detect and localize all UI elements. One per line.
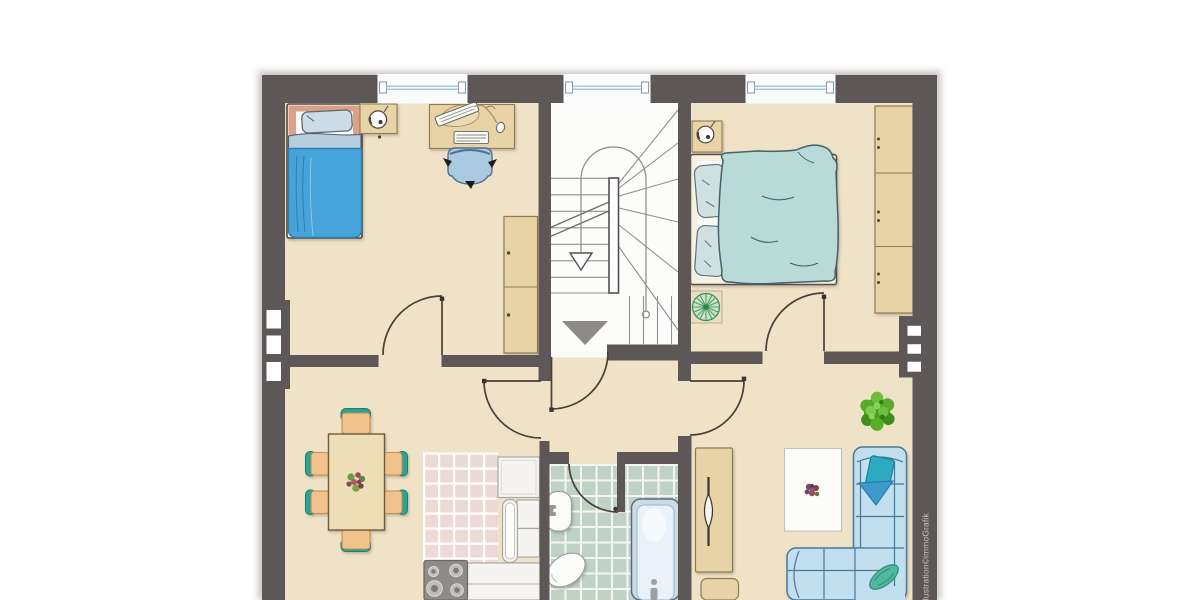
svg-text:Illustration©immoGrafik: Illustration©immoGrafik [921,513,931,600]
